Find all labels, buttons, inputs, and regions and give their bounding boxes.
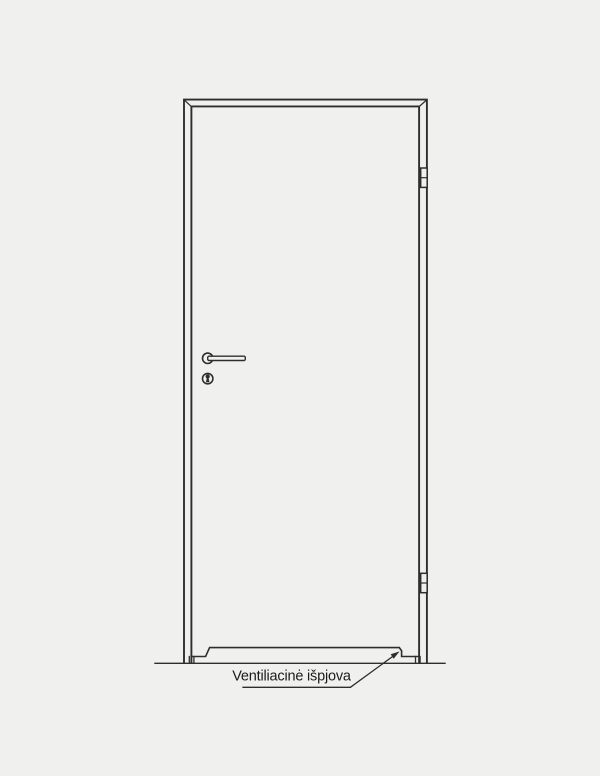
hinge-bottom <box>421 573 428 592</box>
annotation-label: Ventiliacinė išpjova <box>232 669 352 685</box>
drawing-background <box>0 0 600 776</box>
door-technical-drawing: Ventiliacinė išpjova <box>0 0 600 776</box>
hinge-top <box>421 168 428 187</box>
handle-lever <box>208 356 246 360</box>
page-canvas: Ventiliacinė išpjova <box>0 0 600 776</box>
